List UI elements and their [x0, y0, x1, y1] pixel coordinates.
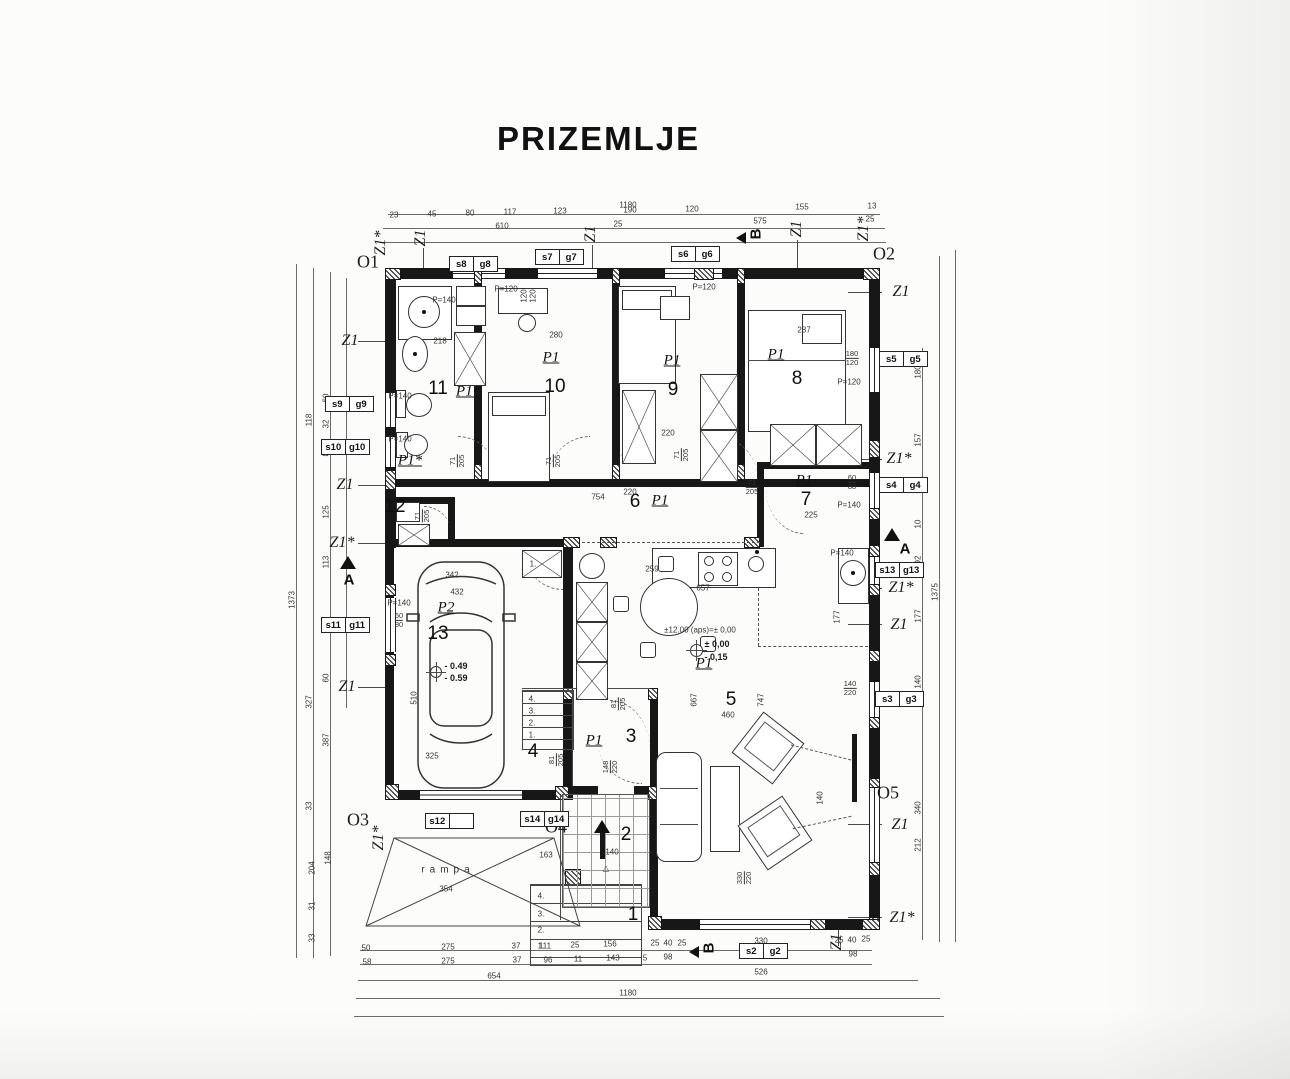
ramp [358, 822, 590, 940]
section-b-marker [689, 946, 699, 958]
tag-cell: s11 [321, 617, 346, 633]
dimension-line [383, 228, 885, 229]
tag-cell: g7 [559, 249, 584, 265]
window-tag-s11: s11g11 [322, 617, 370, 633]
dimension-text: 610 [495, 222, 508, 231]
dimension-text: 3. [529, 707, 536, 716]
dimension-text: 354 [439, 885, 452, 894]
dimension-text: ±12.00 (aps)=± 0,00 [664, 626, 736, 635]
window-tag-s14: s14g14 [521, 811, 569, 827]
dimension-fraction: 71205 [673, 449, 693, 462]
tag-cell: s5 [879, 351, 904, 367]
wall-pier [869, 584, 880, 596]
dimension-line [955, 250, 956, 942]
dimension-text: 140 [914, 675, 923, 688]
dimension-text: 32 [322, 420, 331, 429]
pillow [492, 396, 546, 416]
window-tag-s5: s5g5 [880, 351, 928, 367]
room-number: 9 [668, 379, 679, 401]
room-type-label: P1 [768, 347, 785, 364]
wardrobe [576, 662, 608, 700]
dimension-line [356, 998, 940, 999]
fridge-dot [851, 571, 855, 575]
dimension-text: 212 [914, 838, 923, 851]
tap-dot [413, 352, 417, 356]
opening-label: O5 [877, 783, 899, 804]
dimension-text: 157 [914, 433, 923, 446]
dimension-text: 287 [797, 326, 810, 335]
wardrobe [770, 424, 816, 466]
window [700, 919, 812, 930]
dimension-text: P=120 [494, 285, 517, 294]
wall-pier [385, 654, 396, 666]
wall-pier [694, 268, 714, 280]
closet [456, 286, 486, 306]
entry-arrow-head [594, 820, 610, 833]
tag-cell: g4 [903, 477, 928, 493]
burner [704, 572, 714, 582]
ramp-label: rampa [421, 865, 474, 876]
window-tag-s13: s13g13 [876, 562, 924, 578]
dimension-text: 163 [539, 851, 552, 860]
tag-cell: g3 [899, 691, 924, 707]
armchair [732, 712, 805, 785]
dimension-text: 33 [305, 802, 314, 811]
dimension-text: 25 [862, 935, 871, 944]
entry-arrow-stem [600, 833, 605, 859]
tv-sightline [793, 816, 852, 829]
dimension-text: 33 [308, 934, 317, 943]
tag-cell: g9 [349, 396, 374, 412]
wall-pier [612, 268, 620, 284]
room-type-label: P1 [543, 350, 560, 367]
dimension-text: 340 [914, 801, 923, 814]
dimension-text: 40 [664, 939, 673, 948]
room-type-label: P1* [398, 453, 422, 470]
wall-pier [737, 268, 745, 284]
burner [704, 556, 714, 566]
dimension-fraction: 71205 [414, 510, 434, 523]
dimension-text: 45 [428, 210, 437, 219]
dimension-text: 387 [322, 733, 331, 746]
sink-tap [755, 550, 759, 554]
wardrobe [700, 430, 738, 482]
wall-type-label: Z1 [337, 476, 354, 494]
page-title: PRIZEMLJE [497, 120, 700, 158]
dimension-text: 667 [690, 693, 699, 706]
leader-line [797, 240, 798, 268]
dimension-text: 143 [606, 954, 619, 963]
dimension-text: 2. [538, 926, 545, 935]
tag-cell: s3 [875, 691, 900, 707]
wall-pier [385, 268, 401, 280]
dimension-text: 60 [322, 674, 331, 683]
wall-type-label: Z1 [893, 283, 910, 301]
wall-type-label: Z1* [889, 579, 914, 597]
tag-cell: g13 [899, 562, 924, 578]
window-tag-s2: s2g2 [740, 943, 788, 959]
scan-shading [1100, 0, 1290, 1079]
tag-cell: g2 [763, 943, 788, 959]
wall-type-label: Z1 [892, 816, 909, 834]
dimension-text: 1180 [619, 989, 636, 998]
dimension-text: 220 [661, 429, 674, 438]
wall-pier [385, 584, 396, 596]
room-number: 1 [628, 904, 639, 926]
wall-pier [869, 508, 880, 520]
tag-cell: g6 [695, 246, 720, 262]
wardrobe [700, 374, 738, 430]
open-boundary [758, 646, 868, 647]
dimension-text: 1. [530, 560, 537, 569]
dimension-text: 327 [305, 695, 314, 708]
dimension-text: 118 [305, 414, 314, 427]
tag-cell: g8 [473, 256, 498, 272]
section-a-marker [884, 528, 900, 541]
window-tag-s10: s10g10 [322, 439, 370, 455]
wardrobe [816, 424, 862, 466]
coffee-table [710, 766, 740, 852]
dimension-text: P=120 [837, 378, 860, 387]
dimension-text: 275 [441, 943, 454, 952]
section-b-marker [736, 232, 746, 244]
desk [660, 296, 690, 320]
dimension-fraction: 81205 [548, 754, 568, 767]
dimension-text: 432 [450, 588, 463, 597]
dimension-text: P=140 [388, 435, 411, 444]
dimension-text: 1. [538, 942, 545, 951]
room-number: 13 [427, 623, 448, 645]
dimension-text: 98 [664, 953, 673, 962]
wall-type-label: Z1 [342, 332, 359, 350]
dimension-text: 25 [866, 215, 875, 224]
room-number: 2 [621, 824, 632, 846]
dimension-text: 25 [571, 941, 580, 950]
room-type-label: P1 [652, 493, 669, 510]
leader-line [358, 543, 386, 544]
elevation-text: - 0,15 [704, 652, 727, 662]
window-tag-s3: s3g3 [876, 691, 924, 707]
tag-cell: s6 [671, 246, 696, 262]
dimension-text: P=140 [432, 296, 455, 305]
wall-pier [869, 717, 880, 729]
dimension-line [358, 980, 918, 981]
dimension-text: 120 [520, 289, 529, 302]
tag-cell: s14 [520, 811, 545, 827]
floorplan-page: PRIZEMLJE [0, 0, 1290, 1079]
wall-type-label: Z1* [370, 826, 388, 851]
window-tag-s4: s4g4 [880, 477, 928, 493]
room-number: 4 [528, 741, 539, 763]
chair [518, 314, 536, 332]
dimension-text: 4. [529, 695, 536, 704]
tv-sightline [791, 745, 851, 761]
leader-line [358, 341, 386, 342]
dimension-text: 155 [795, 203, 808, 212]
dimension-text: 5 [643, 954, 647, 963]
dimension-text: 140 [816, 791, 825, 804]
dimension-text: 275 [441, 957, 454, 966]
tag-cell: s12 [425, 813, 450, 829]
dimension-text: 204 [308, 861, 317, 874]
elevation-cross [436, 662, 437, 682]
wall-pier [385, 784, 399, 800]
window-tag-s8: s8g8 [450, 256, 498, 272]
room-number: 10 [544, 376, 565, 398]
shower-tray [398, 524, 430, 546]
drain-dot [422, 310, 426, 314]
dimension-text: 113 [322, 556, 331, 569]
dimension-text: 25 [614, 220, 623, 229]
dimension-text: 96 [544, 956, 553, 965]
elevation-text: - 0.49 [444, 661, 467, 671]
wall-pier [810, 919, 826, 930]
scan-shading [0, 1010, 1290, 1079]
window-tag-s6: s6g6 [672, 246, 720, 262]
open-boundary [582, 542, 760, 543]
wardrobe [576, 582, 608, 622]
armchair [738, 796, 813, 871]
dimension-text: 220 [623, 488, 636, 497]
dimension-line [313, 268, 314, 958]
wardrobe [454, 332, 486, 386]
wall-pier [869, 650, 880, 662]
dimension-text: 2. [529, 719, 536, 728]
dimension-text: △ [603, 864, 609, 873]
dimension-line [354, 1016, 944, 1017]
wall-type-label: Z1 [412, 230, 430, 247]
dimension-text: P=140 [837, 501, 860, 510]
chair [658, 556, 674, 572]
stair-wall [572, 690, 573, 786]
wall-pier [648, 688, 658, 700]
wardrobe [622, 390, 656, 464]
dimension-text: 510 [410, 691, 419, 704]
dimension-text: 177 [914, 609, 923, 622]
dimension-text: 180 [914, 365, 923, 378]
dimension-fraction: 140220 [844, 680, 857, 700]
room-number: 3 [626, 726, 637, 748]
dimension-text: 754 [591, 493, 604, 502]
room-number: 8 [792, 368, 803, 390]
dimension-text: 747 [757, 693, 766, 706]
dimension-text: 218 [433, 337, 446, 346]
dimension-text: 98 [849, 950, 858, 959]
entry-step [522, 550, 562, 578]
closet [456, 306, 486, 326]
dimension-text: 140 [605, 848, 618, 857]
tag-cell: s9 [325, 396, 350, 412]
dimension-text: 654 [487, 972, 500, 981]
dimension-fraction: 71205 [449, 455, 469, 468]
dimension-fraction: 180120 [846, 350, 859, 370]
dimension-text: 125 [322, 505, 331, 518]
dimension-text: 1375 [931, 583, 940, 601]
sofa [656, 752, 702, 862]
tag-cell: g5 [903, 351, 928, 367]
dimension-text: 80 [466, 209, 475, 218]
boiler [579, 553, 605, 579]
window-tag-s9: s9g9 [326, 396, 374, 412]
window-tag-s7: s7g7 [536, 249, 584, 265]
dimension-text: 1. [529, 731, 536, 740]
room-type-label: P1* [456, 384, 480, 401]
dimension-fraction: 330220 [736, 872, 756, 885]
dimension-text: 117 [504, 208, 517, 217]
dimension-text: P=140 [830, 549, 853, 558]
bed-line [748, 360, 846, 361]
tag-cell: s2 [739, 943, 764, 959]
section-letter: A [900, 541, 911, 558]
tag-cell: g14 [544, 811, 569, 827]
opening-label: O3 [347, 810, 369, 831]
wall-pier [863, 268, 880, 280]
section-letter: B [701, 943, 718, 954]
dimension-fraction: 71205 [545, 455, 565, 468]
tag-cell: g10 [345, 439, 370, 455]
burner [722, 572, 732, 582]
burner [722, 556, 732, 566]
room-number: 5 [726, 689, 737, 711]
section-letter: A [344, 572, 355, 589]
tag-cell: s10 [321, 439, 346, 455]
tag-cell: s4 [879, 477, 904, 493]
tag-cell: s13 [875, 562, 900, 578]
wall-pier [869, 862, 880, 876]
dimension-text: 325 [425, 752, 438, 761]
wall-type-label: Z1* [330, 534, 355, 552]
dimension-text: 3. [538, 910, 545, 919]
door-swing [766, 488, 804, 534]
dimension-text: 31 [308, 902, 317, 911]
dimension-text: 50 [362, 944, 371, 953]
tag-cell: g11 [345, 617, 370, 633]
dimension-fraction: 148220 [602, 761, 622, 774]
dimension-text: 40 [848, 936, 857, 945]
wall-type-label: Z1 [582, 226, 600, 243]
dimension-text: 37 [512, 942, 521, 951]
leader-line [592, 245, 593, 268]
sofa-line [660, 788, 698, 789]
dimension-fraction: 71205 [746, 479, 759, 499]
room-type-label: P2 [438, 600, 455, 617]
section-a-marker [340, 556, 356, 569]
dimension-text: 11 [574, 955, 582, 964]
dimension-text: P=120 [692, 283, 715, 292]
window [538, 268, 597, 279]
tv [852, 734, 857, 802]
wall-pier [385, 470, 396, 490]
wall-pier [563, 537, 580, 548]
wall-type-label: Z1* [890, 909, 915, 927]
tag-cell: s7 [535, 249, 560, 265]
tag-cell [449, 813, 474, 829]
room-type-label: P1 [796, 473, 813, 490]
dimension-text: 120 [529, 289, 538, 302]
dimension-fraction: 81205 [610, 698, 630, 711]
wall-pier [862, 919, 880, 930]
wall-type-label: Z1 [891, 616, 908, 634]
room-type-label: P1 [586, 733, 603, 750]
window-tag-s12: s12 [426, 813, 474, 829]
dimension-text: P=140 [388, 392, 411, 401]
leader-line [423, 248, 424, 268]
wardrobe [576, 622, 608, 662]
room-type-label: P1 [664, 353, 681, 370]
wall-type-label: Z1 [339, 678, 356, 696]
dimension-text: 460 [721, 711, 734, 720]
dimension-text: 148 [324, 851, 333, 864]
dimension-text: 1373 [288, 591, 297, 609]
opening-label: O1 [357, 252, 379, 273]
dimension-text: 177 [833, 610, 842, 623]
sink [748, 556, 764, 572]
dimension-text: 13 [868, 202, 877, 211]
room-number: 11 [428, 378, 448, 400]
dimension-fraction: 6080 [848, 474, 856, 494]
tag-cell: s8 [449, 256, 474, 272]
dimension-text: 25 [651, 939, 660, 948]
wall-type-label: Z1 [788, 221, 806, 238]
sofa-line [660, 824, 698, 825]
opening-label: O2 [873, 244, 895, 265]
room-number: 12 [384, 496, 405, 518]
dimension-text: 58 [363, 958, 372, 967]
dimension-text: 25 [678, 939, 687, 948]
dimension-text: 4. [538, 892, 545, 901]
dimension-text: 25 [835, 936, 844, 945]
elevation-text: - 0.59 [444, 673, 467, 683]
wall-pier [648, 916, 662, 930]
dimension-text: 10 [914, 520, 923, 529]
dimension-line [296, 264, 297, 958]
chair [640, 642, 656, 658]
dimension-text: 37 [513, 956, 522, 965]
wall [757, 462, 764, 547]
dimension-text: 23 [390, 211, 399, 220]
dimension-text: 280 [549, 331, 562, 340]
room-number: 7 [801, 489, 812, 511]
dimension-text: 120 [685, 205, 698, 214]
section-letter: B [748, 229, 765, 240]
leader-line [358, 687, 386, 688]
dimension-text: 526 [754, 968, 767, 977]
leader-line [358, 485, 386, 486]
wall-type-label: Z1* [887, 450, 912, 468]
dimension-text: 123 [553, 207, 566, 216]
elevation-text: ± 0,00 [705, 639, 730, 649]
dimension-text: 342 [445, 571, 458, 580]
dimension-line [380, 242, 886, 243]
dimension-text: 657 [696, 584, 709, 593]
dimension-fraction: 6080 [395, 612, 403, 632]
dimension-text: 259 [645, 565, 658, 574]
wall-pier [869, 440, 880, 458]
dimension-text: P=140 [387, 599, 410, 608]
dimension-text: 156 [603, 940, 616, 949]
chair [613, 596, 629, 612]
dimension-text: 225 [804, 511, 817, 520]
dimension-text: 190 [623, 206, 636, 215]
wall-pier [869, 545, 880, 557]
dimension-text: 575 [753, 217, 766, 226]
